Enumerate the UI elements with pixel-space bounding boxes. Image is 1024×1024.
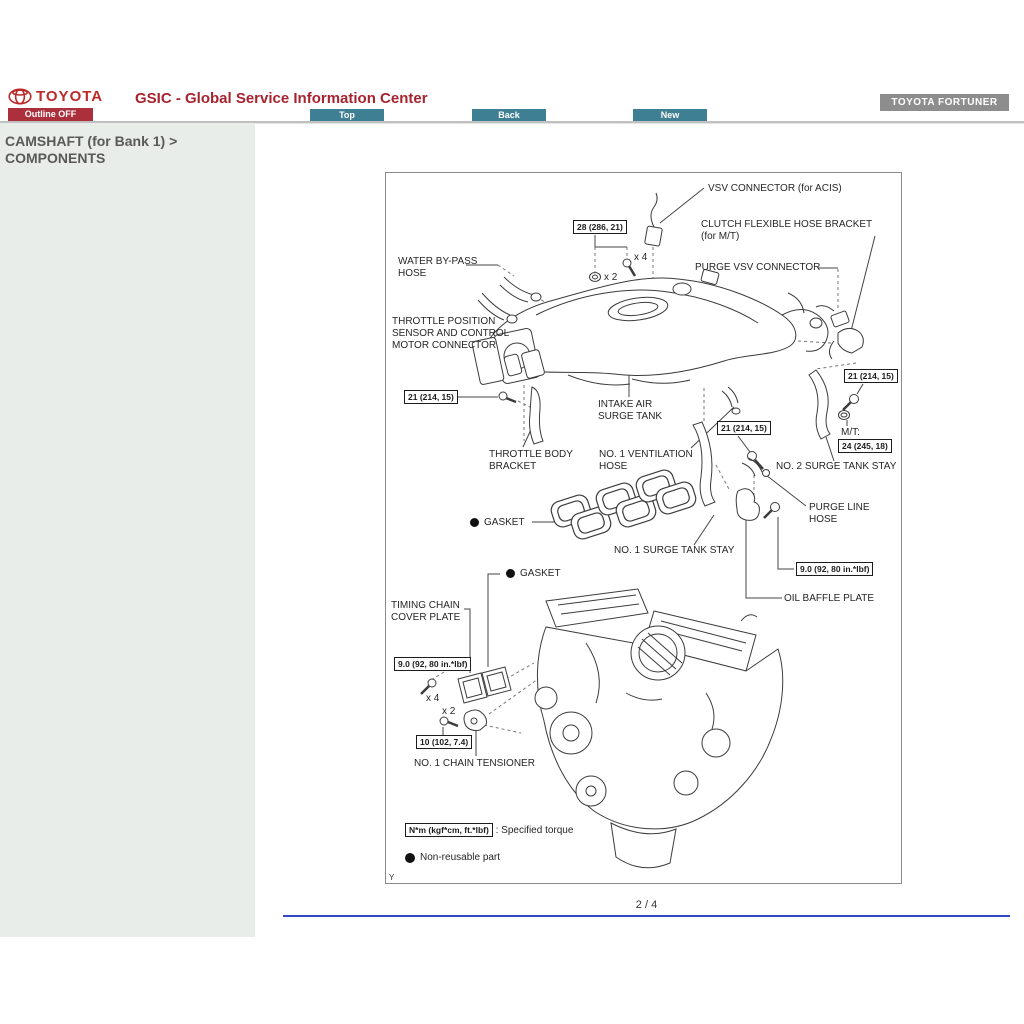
torque-21-left: 21 (214, 15) <box>404 390 458 404</box>
figure-corner-mark: Y <box>389 873 394 882</box>
label-tps-2: SENSOR AND CONTROL <box>392 328 509 340</box>
label-purge-line-1: PURGE LINE <box>809 502 870 514</box>
count-x4-bottom: x 4 <box>426 693 439 704</box>
back-button[interactable]: Back <box>472 109 546 121</box>
torque-21-mid: 21 (214, 15) <box>717 421 771 435</box>
outline-off-button[interactable]: Outline OFF <box>8 108 93 121</box>
torque-21-right: 21 (214, 15) <box>844 369 898 383</box>
label-intake-2: SURGE TANK <box>598 411 662 423</box>
label-clutch-bracket-2: (for M/T) <box>701 231 739 243</box>
toyota-emblem-icon <box>8 88 32 105</box>
label-no2-stay: NO. 2 SURGE TANK STAY <box>776 461 896 473</box>
label-chain-tensioner: NO. 1 CHAIN TENSIONER <box>414 758 535 770</box>
label-no1-stay: NO. 1 SURGE TANK STAY <box>614 545 734 557</box>
torque-9-left: 9.0 (92, 80 in.*lbf) <box>394 657 471 671</box>
label-tps-3: MOTOR CONNECTOR <box>392 340 496 352</box>
breadcrumb-line1: CAMSHAFT (for Bank 1) > <box>5 133 177 150</box>
label-gasket-2: GASKET <box>520 568 561 580</box>
label-timing-cover-2: COVER PLATE <box>391 612 460 624</box>
breadcrumb-line2: COMPONENTS <box>5 150 177 167</box>
count-x4-top: x 4 <box>634 252 647 263</box>
new-button[interactable]: New <box>633 109 707 121</box>
footer-rule <box>283 915 1010 917</box>
engine-diagram-art <box>386 173 901 883</box>
label-vent-hose-1: NO. 1 VENTILATION <box>599 449 693 461</box>
sidebar: CAMSHAFT (for Bank 1) > COMPONENTS <box>0 123 255 937</box>
label-throttle-bracket-1: THROTTLE BODY <box>489 449 573 461</box>
torque-9-right: 9.0 (92, 80 in.*lbf) <box>796 562 873 576</box>
label-purge-vsv: PURGE VSV CONNECTOR <box>695 262 820 274</box>
vehicle-badge: TOYOTA FORTUNER <box>880 94 1009 111</box>
label-tps-1: THROTTLE POSITION <box>392 316 495 328</box>
toyota-logo: TOYOTA <box>8 88 103 105</box>
label-clutch-bracket-1: CLUTCH FLEXIBLE HOSE BRACKET <box>701 219 872 231</box>
label-intake-1: INTAKE AIR <box>598 399 652 411</box>
label-purge-line-2: HOSE <box>809 514 837 526</box>
legend-nonreusable: Non-reusable part <box>420 852 500 864</box>
label-water-bypass-1: WATER BY-PASS <box>398 256 477 268</box>
torque-10: 10 (102, 7.4) <box>416 735 472 749</box>
page-indicator: 2 / 4 <box>283 899 1010 911</box>
label-gasket-1: GASKET <box>484 517 525 529</box>
nonreusable-dot-icon <box>470 518 479 527</box>
breadcrumb: CAMSHAFT (for Bank 1) > COMPONENTS <box>5 133 177 167</box>
label-timing-cover-1: TIMING CHAIN <box>391 600 460 612</box>
legend-torque-unit: N*m (kgf*cm, ft.*lbf) <box>405 823 493 837</box>
label-throttle-bracket-2: BRACKET <box>489 461 536 473</box>
nonreusable-dot-icon <box>506 569 515 578</box>
gasket-rings-art <box>549 468 698 541</box>
nonreusable-dot-icon <box>405 853 415 863</box>
page-title: GSIC - Global Service Information Center <box>135 90 428 107</box>
components-figure: VSV CONNECTOR (for ACIS) 28 (286, 21) x … <box>385 172 902 884</box>
label-oil-baffle: OIL BAFFLE PLATE <box>784 593 874 605</box>
count-x2-top: x 2 <box>604 272 617 283</box>
torque-24: 24 (245, 18) <box>838 439 892 453</box>
count-x2-bottom: x 2 <box>442 706 455 717</box>
torque-28: 28 (286, 21) <box>573 220 627 234</box>
label-mt: M/T: <box>841 427 860 439</box>
brand-name: TOYOTA <box>36 88 103 105</box>
legend-torque-desc: : Specified torque <box>496 825 574 836</box>
top-button[interactable]: Top <box>310 109 384 121</box>
label-water-bypass-2: HOSE <box>398 268 426 280</box>
label-vent-hose-2: HOSE <box>599 461 627 473</box>
label-vsv-connector: VSV CONNECTOR (for ACIS) <box>708 183 842 195</box>
legend-torque: N*m (kgf*cm, ft.*lbf) : Specified torque <box>405 823 573 837</box>
